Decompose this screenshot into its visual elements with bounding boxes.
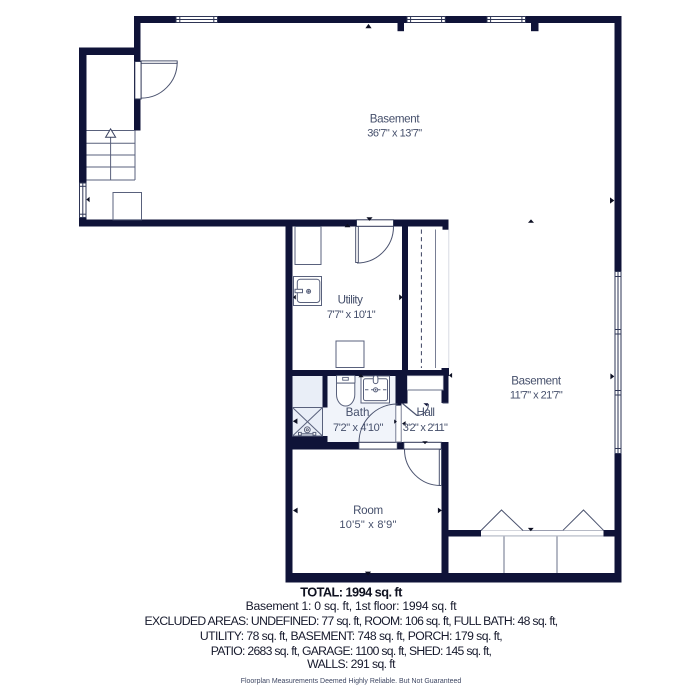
svg-text:Room: Room [353, 504, 383, 517]
svg-text:Basement: Basement [370, 113, 421, 126]
svg-text:10'5" x 8'9": 10'5" x 8'9" [339, 519, 396, 531]
svg-text:7'7" x 10'1": 7'7" x 10'1" [327, 309, 376, 321]
svg-text:UTILITY: 78 sq. ft, BASEMENT:: UTILITY: 78 sq. ft, BASEMENT: 748 sq. ft… [200, 629, 502, 643]
svg-text:Bath: Bath [346, 406, 370, 419]
svg-text:EXCLUDED AREAS: UNDEFINED: 77: EXCLUDED AREAS: UNDEFINED: 77 sq. ft, RO… [144, 614, 557, 628]
svg-text:Floorplan Measurements Deemed: Floorplan Measurements Deemed Highly Rel… [241, 678, 462, 685]
svg-text:WALLS: 291 sq. ft: WALLS: 291 sq. ft [307, 657, 396, 671]
svg-text:36'7" x 13'7": 36'7" x 13'7" [367, 128, 422, 140]
svg-text:7'2" x 4'10": 7'2" x 4'10" [333, 422, 383, 434]
svg-text:3'2" x 2'11": 3'2" x 2'11" [403, 422, 448, 434]
svg-text:PATIO: 2683 sq. ft, GARAGE: 11: PATIO: 2683 sq. ft, GARAGE: 1100 sq. ft,… [211, 644, 492, 658]
svg-text:Basement 1: 0 sq. ft, 1st floo: Basement 1: 0 sq. ft, 1st floor: 1994 sq… [246, 599, 458, 613]
svg-text:Basement: Basement [511, 375, 562, 388]
svg-text:Utility: Utility [338, 294, 364, 307]
svg-text:11'7" x 21'7": 11'7" x 21'7" [510, 390, 563, 402]
svg-text:TOTAL: 1994 sq. ft: TOTAL: 1994 sq. ft [300, 584, 403, 599]
svg-text:Hall: Hall [417, 406, 435, 419]
